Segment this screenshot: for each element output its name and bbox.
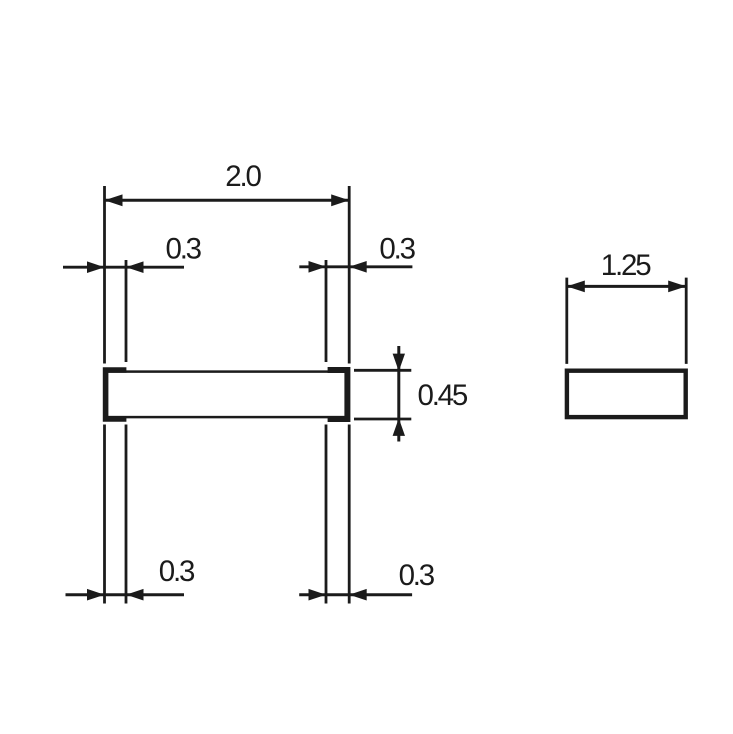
svg-text:1.25: 1.25 <box>601 249 651 282</box>
svg-text:0.45: 0.45 <box>417 379 467 412</box>
svg-text:0.3: 0.3 <box>165 232 201 265</box>
svg-text:2.0: 2.0 <box>225 160 261 193</box>
svg-text:0.3: 0.3 <box>159 555 195 588</box>
svg-text:0.3: 0.3 <box>399 559 435 592</box>
svg-text:0.3: 0.3 <box>379 232 415 265</box>
